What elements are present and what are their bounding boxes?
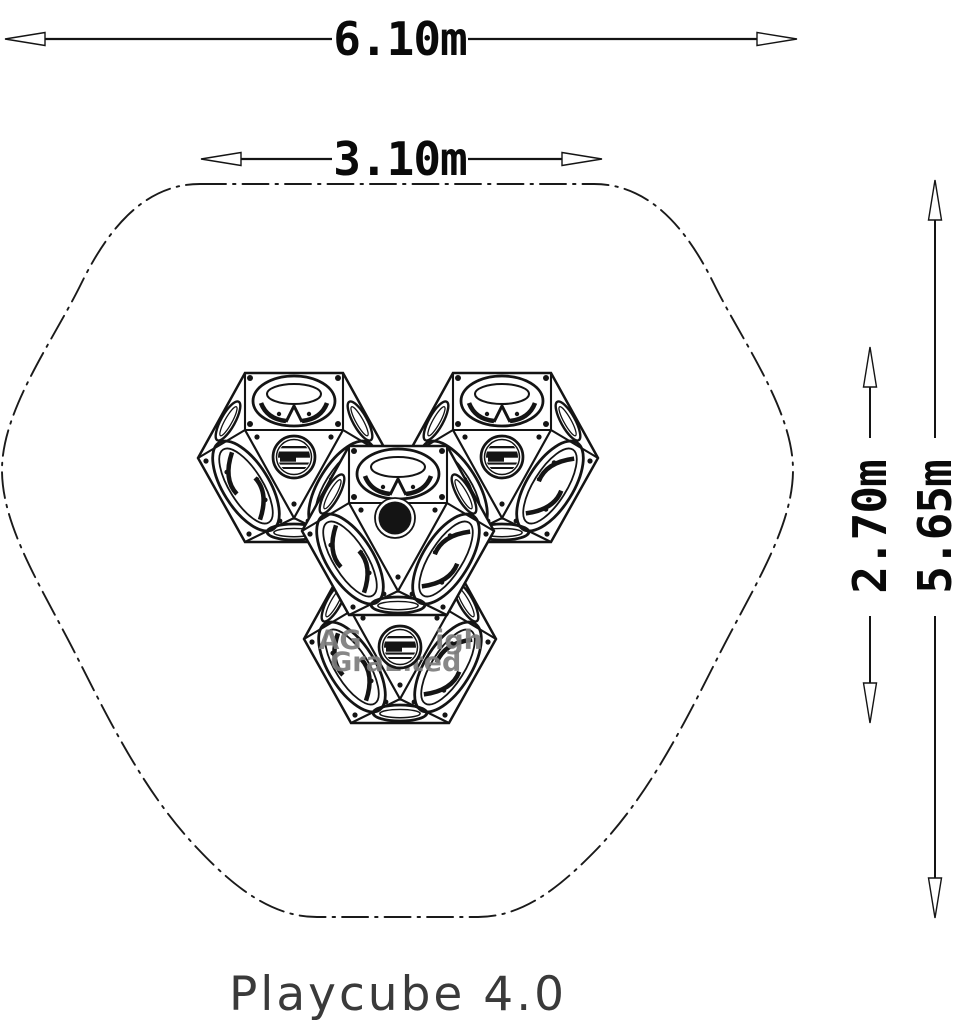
climb-panel-top-right xyxy=(481,436,523,478)
product-title: Playcube 4.0 xyxy=(229,967,567,1022)
watermark-fragment: Gra xyxy=(330,647,384,678)
entry-hole-center xyxy=(375,498,415,538)
structure-width-label: 3.10m xyxy=(333,132,466,186)
dimension-structure-width: 3.10m xyxy=(201,132,602,186)
plan-drawing-page: 6.10m 3.10m 2.70m 5.65m xyxy=(0,0,955,1024)
climb-panel-bottom xyxy=(379,626,421,668)
overall-width-label: 6.10m xyxy=(333,12,466,66)
playcube-plan-diagram: 6.10m 3.10m 2.70m 5.65m xyxy=(0,0,955,1024)
dimension-overall-height: 5.65m xyxy=(908,180,955,918)
overall-height-label: 5.65m xyxy=(908,460,955,593)
structure-height-label: 2.70m xyxy=(843,460,897,593)
dimension-structure-height: 2.70m xyxy=(843,347,897,723)
dimension-overall-width: 6.10m xyxy=(5,12,797,66)
climb-panel-top-left xyxy=(273,436,315,478)
